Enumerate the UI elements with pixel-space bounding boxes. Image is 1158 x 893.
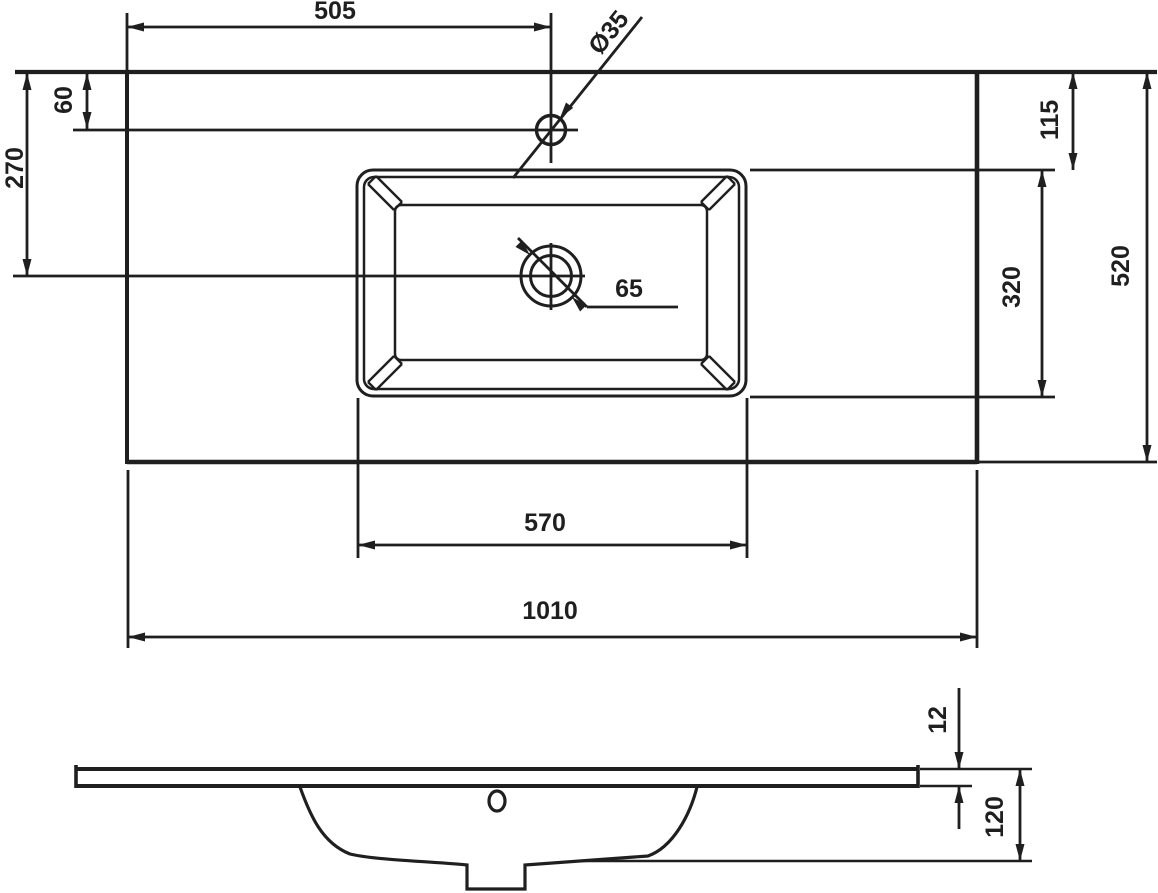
top-view: 505 Ø35 60 270 115 320 520 65 570 1010	[1, 0, 1157, 648]
faucet-leader	[513, 17, 642, 178]
drain-hole	[521, 243, 581, 310]
bowl-profile	[300, 787, 697, 889]
dim-label-505: 505	[314, 0, 356, 25]
technical-drawing: 505 Ø35 60 270 115 320 520 65 570 1010	[0, 0, 1158, 893]
drawing-canvas: 505 Ø35 60 270 115 320 520 65 570 1010	[0, 0, 1158, 893]
dimension-labels-top-view: 505 Ø35 60 270 115 320 520 65 570 1010	[1, 0, 1135, 625]
dim-label-115: 115	[1036, 100, 1064, 140]
dim-label-570: 570	[524, 509, 566, 537]
extension-lines-side-view	[578, 769, 1032, 861]
dim-label-270: 270	[1, 147, 29, 189]
extension-lines	[13, 13, 1157, 648]
dim-label-d35: Ø35	[583, 5, 635, 59]
side-view: 12 120	[76, 688, 1032, 889]
slab-profile	[76, 765, 918, 788]
dim-label-65: 65	[615, 275, 643, 303]
overflow-hole	[489, 791, 505, 811]
dim-label-60: 60	[50, 86, 78, 114]
dim-label-1010: 1010	[522, 597, 578, 625]
dim-label-520: 520	[1107, 245, 1135, 287]
dim-label-320: 320	[998, 266, 1026, 308]
dim-label-120: 120	[981, 796, 1009, 838]
dim-label-12: 12	[924, 706, 952, 734]
dimension-labels-side-view: 12 120	[924, 706, 1009, 838]
